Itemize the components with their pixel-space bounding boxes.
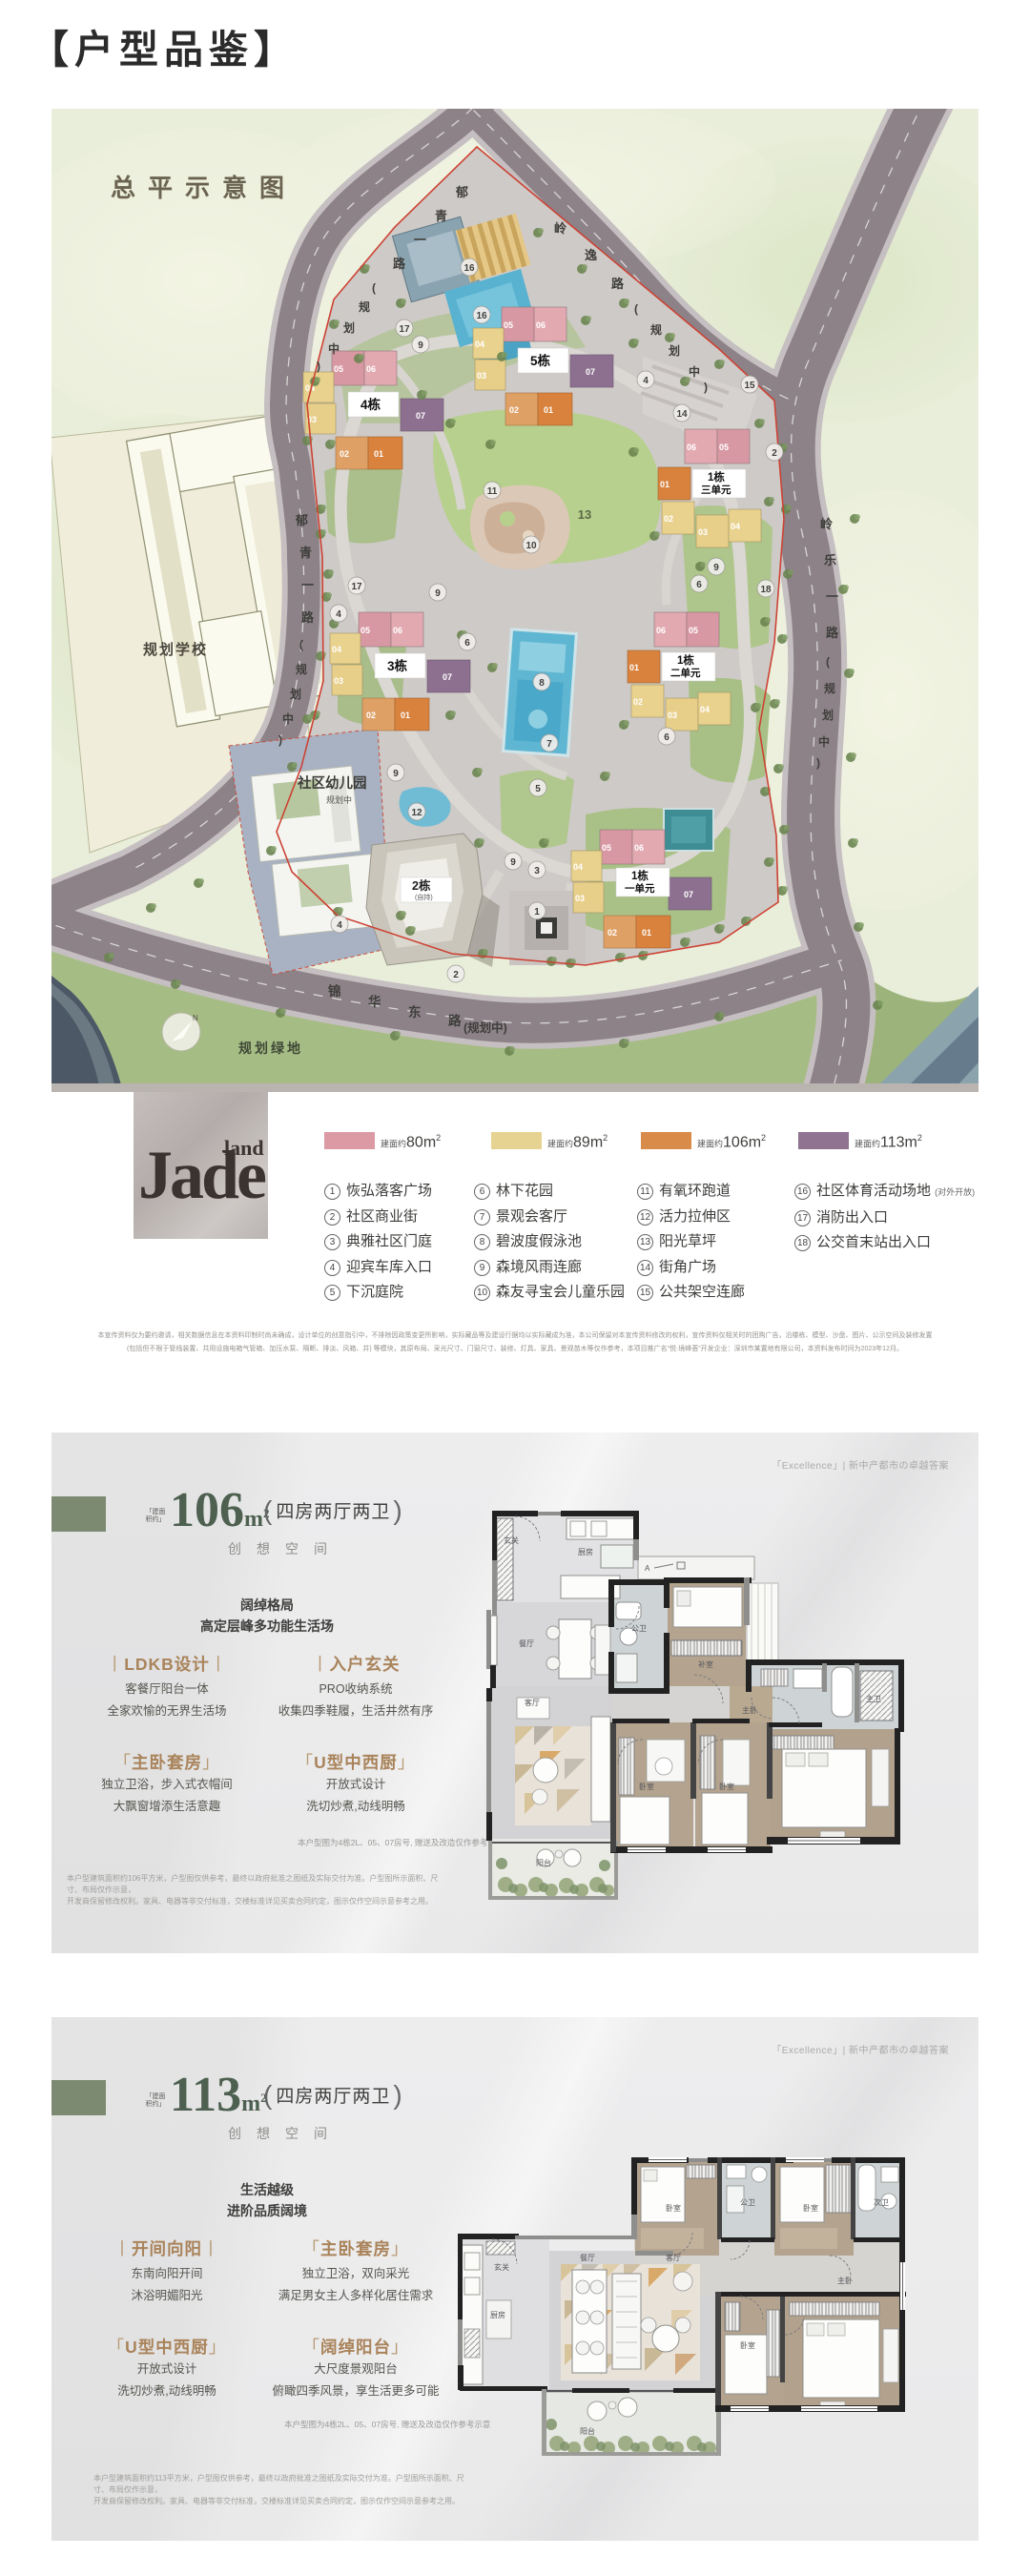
svg-text:卧室: 卧室 <box>740 2340 755 2350</box>
svg-text:13: 13 <box>578 507 591 522</box>
svg-text:总平示意图: 总平示意图 <box>111 174 297 202</box>
svg-text:路: 路 <box>611 277 625 291</box>
svg-text:9: 9 <box>418 340 423 351</box>
svg-text:郁: 郁 <box>295 513 308 527</box>
svg-text:规划绿地: 规划绿地 <box>238 1041 303 1056</box>
svg-text:规: 规 <box>296 662 307 676</box>
svg-text:(: ( <box>299 638 303 651</box>
svg-text:9: 9 <box>510 857 516 868</box>
svg-text:餐厅: 餐厅 <box>519 1639 534 1648</box>
svg-text:青: 青 <box>299 546 312 560</box>
svg-text:补室: 补室 <box>698 1659 713 1669</box>
svg-text:5栋: 5栋 <box>530 353 551 368</box>
svg-text:一: 一 <box>414 233 426 247</box>
svg-text:玄关: 玄关 <box>494 2262 509 2272</box>
svg-text:规: 规 <box>650 322 662 337</box>
svg-text:玄关: 玄关 <box>504 1535 519 1545</box>
svg-text:一单元: 一单元 <box>625 882 655 895</box>
svg-text:中: 中 <box>689 364 700 379</box>
svg-text:(: ( <box>826 655 830 669</box>
svg-text:17: 17 <box>351 582 362 592</box>
svg-text:主卫: 主卫 <box>866 1694 881 1703</box>
svg-text:9: 9 <box>435 588 441 599</box>
svg-text:1: 1 <box>534 907 540 917</box>
svg-text:4: 4 <box>643 376 649 386</box>
svg-text:): ) <box>317 360 320 373</box>
svg-text:划: 划 <box>290 687 301 701</box>
svg-text:15: 15 <box>744 381 755 391</box>
svg-text:划: 划 <box>343 320 355 335</box>
svg-text:14: 14 <box>676 409 688 420</box>
svg-text:3栋: 3栋 <box>387 658 408 673</box>
svg-text:16: 16 <box>476 311 487 321</box>
svg-text:规划中: 规划中 <box>326 794 352 805</box>
svg-text:6: 6 <box>464 638 470 649</box>
svg-text:8: 8 <box>539 678 545 689</box>
svg-text:中: 中 <box>328 341 340 356</box>
svg-text:卧室: 卧室 <box>666 2203 681 2213</box>
svg-text:6: 6 <box>696 580 702 590</box>
svg-text:划: 划 <box>669 343 680 358</box>
svg-text:华: 华 <box>368 994 381 1009</box>
svg-text:(: ( <box>372 281 376 295</box>
svg-text:客厅: 客厅 <box>666 2253 681 2262</box>
svg-text:阳台: 阳台 <box>536 1858 551 1867</box>
svg-text:郁: 郁 <box>455 185 468 199</box>
svg-text:): ) <box>278 733 282 747</box>
svg-text:逸: 逸 <box>585 248 597 262</box>
svg-text:9: 9 <box>713 563 719 573</box>
svg-text:厨房: 厨房 <box>490 2310 505 2319</box>
svg-text:乐: 乐 <box>824 553 836 567</box>
svg-text:12: 12 <box>411 808 422 818</box>
svg-text:社区幼儿园: 社区幼儿园 <box>297 774 367 792</box>
svg-text:划: 划 <box>822 708 834 722</box>
svg-text:): ) <box>816 756 820 770</box>
svg-text:二单元: 二单元 <box>670 667 701 679</box>
svg-text:规: 规 <box>824 681 835 695</box>
svg-text:公卫: 公卫 <box>740 2198 755 2207</box>
svg-text:A: A <box>645 1564 650 1573</box>
svg-text:路: 路 <box>826 626 839 640</box>
svg-text:岭: 岭 <box>820 517 833 531</box>
svg-text:16: 16 <box>463 263 475 274</box>
svg-text:岭: 岭 <box>554 221 566 236</box>
svg-text:(: ( <box>634 302 638 316</box>
svg-text:三单元: 三单元 <box>701 484 731 496</box>
svg-text:阳台: 阳台 <box>580 2426 595 2436</box>
svg-text:餐厅: 餐厅 <box>580 2254 595 2262</box>
svg-text:卧室: 卧室 <box>639 1782 654 1791</box>
svg-text:7: 7 <box>546 739 552 750</box>
svg-text:4栋: 4栋 <box>360 397 381 412</box>
svg-text:一: 一 <box>826 589 838 604</box>
svg-text:4: 4 <box>337 920 342 931</box>
svg-text:1栋: 1栋 <box>631 869 649 882</box>
svg-text:): ) <box>704 381 708 394</box>
svg-text:次卫: 次卫 <box>874 2197 889 2207</box>
svg-text:3: 3 <box>534 866 540 876</box>
svg-text:规: 规 <box>359 299 370 314</box>
svg-text:N: N <box>193 1014 198 1022</box>
svg-text:中: 中 <box>818 734 830 749</box>
svg-text:青: 青 <box>435 209 447 223</box>
svg-text:4: 4 <box>336 609 341 620</box>
svg-text:5: 5 <box>535 784 541 794</box>
svg-text:主卧: 主卧 <box>742 1705 757 1715</box>
svg-text:公卫: 公卫 <box>631 1624 647 1633</box>
svg-text:卧室: 卧室 <box>719 1782 734 1791</box>
svg-text:17: 17 <box>399 324 410 335</box>
svg-text:厨房: 厨房 <box>578 1547 593 1556</box>
svg-text:10: 10 <box>525 541 537 551</box>
svg-text:1栋: 1栋 <box>708 470 725 484</box>
svg-text:规划学校: 规划学校 <box>143 641 208 658</box>
svg-text:路: 路 <box>393 257 406 271</box>
svg-text:2: 2 <box>772 448 777 459</box>
svg-text:1栋: 1栋 <box>677 653 694 667</box>
svg-text:6: 6 <box>664 732 669 743</box>
svg-text:18: 18 <box>760 585 772 595</box>
svg-text:主卧: 主卧 <box>837 2276 853 2285</box>
svg-text:路: 路 <box>301 610 315 625</box>
svg-text:东: 东 <box>408 1004 422 1020</box>
svg-text:11: 11 <box>487 486 498 497</box>
svg-text:一: 一 <box>301 578 314 592</box>
svg-text:中: 中 <box>282 711 294 726</box>
svg-text:路: 路 <box>448 1013 462 1028</box>
svg-text:9: 9 <box>393 769 399 779</box>
svg-text:(自持): (自持) <box>415 893 433 901</box>
svg-text:客厅: 客厅 <box>525 1698 540 1707</box>
svg-text:2栋: 2栋 <box>412 878 431 893</box>
svg-text:(规划中): (规划中) <box>463 1020 507 1035</box>
svg-text:2: 2 <box>453 970 459 980</box>
svg-text:锦: 锦 <box>328 983 341 999</box>
svg-text:卧室: 卧室 <box>803 2203 818 2213</box>
